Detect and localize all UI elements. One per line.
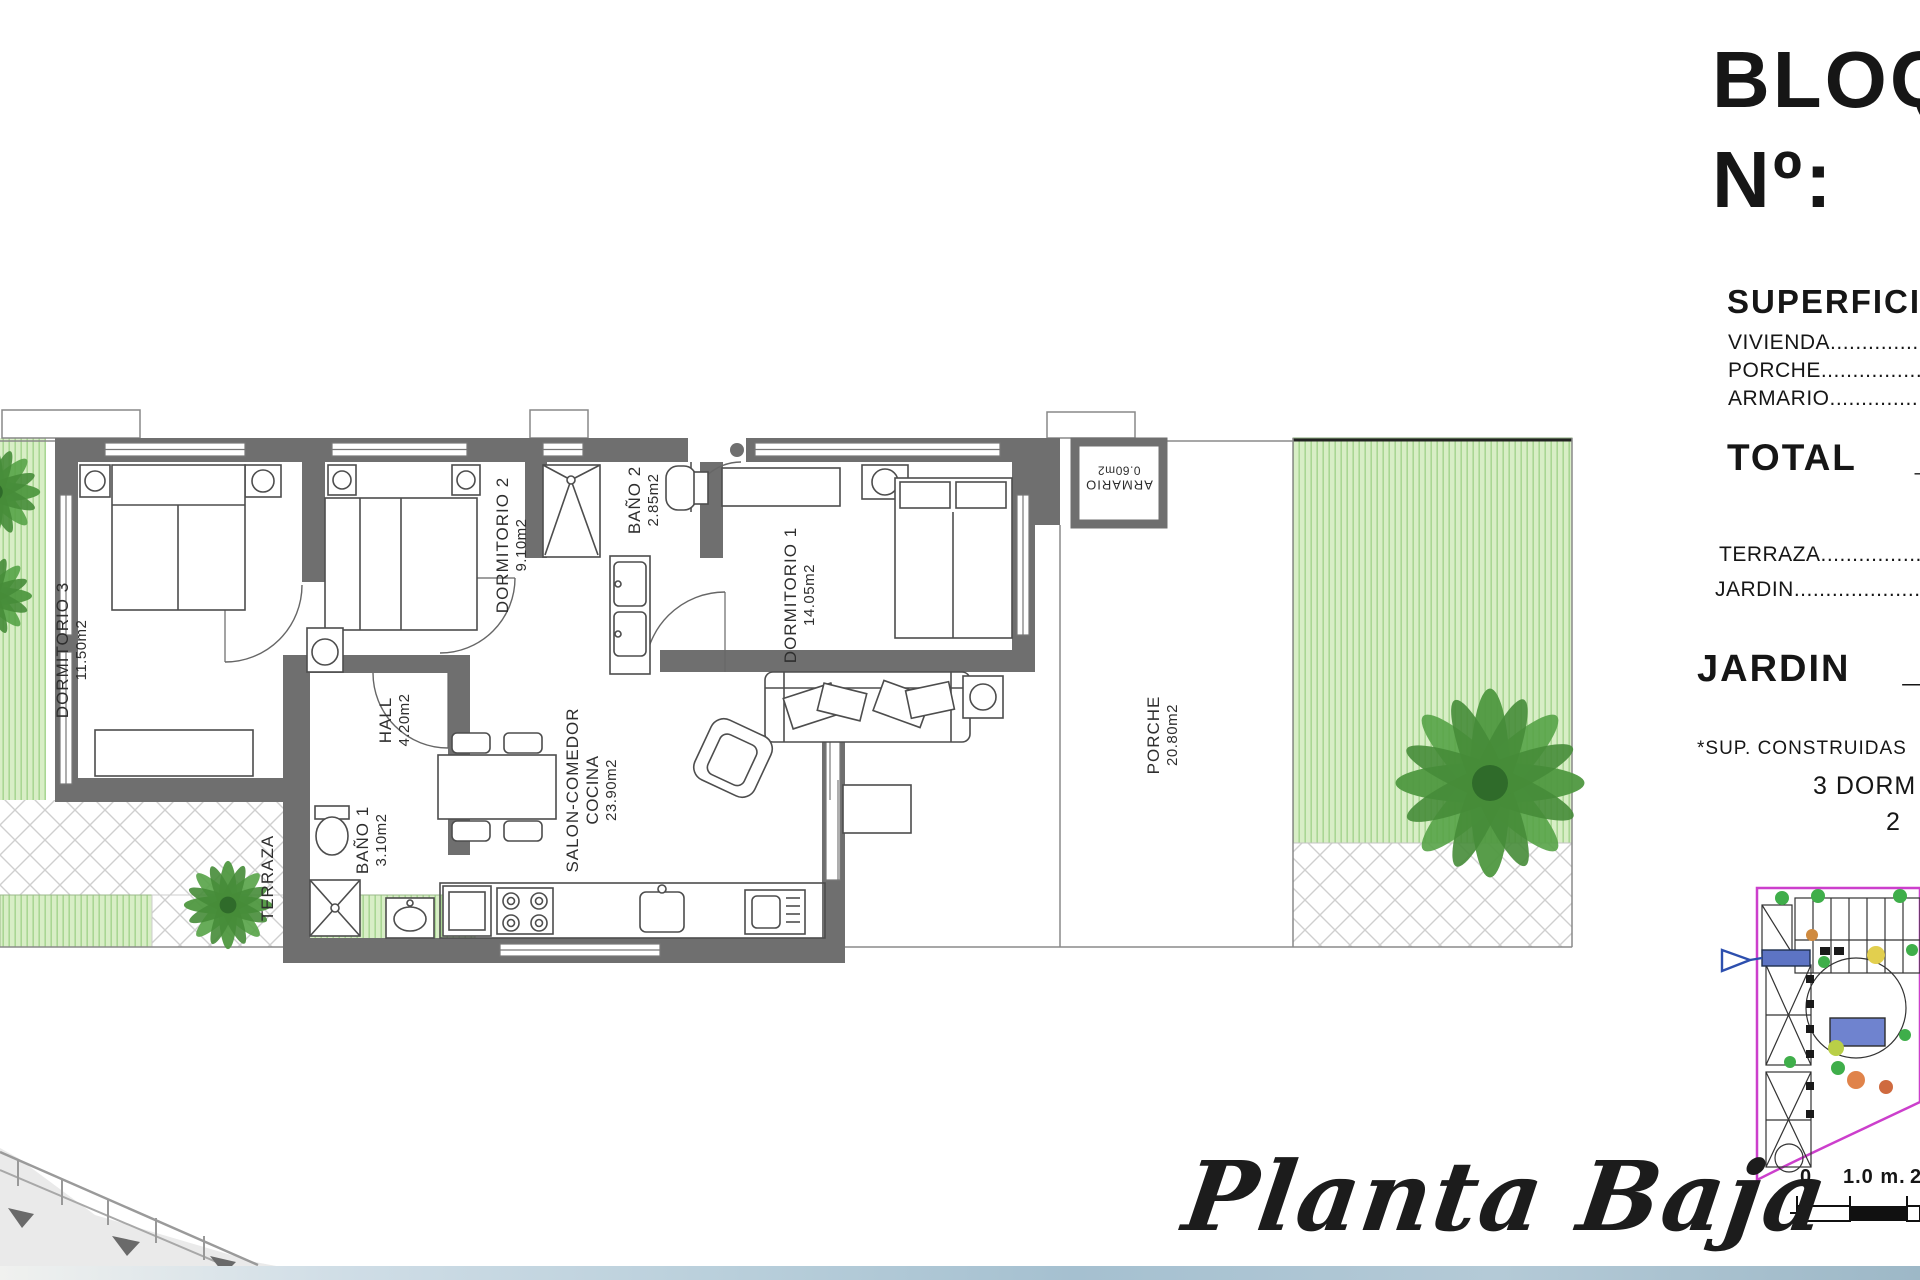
room-area: 14.05m2 <box>801 527 819 663</box>
surface-line-vivienda: VIVIENDA................................… <box>1728 331 1920 355</box>
block-title: BLOQ <box>1712 34 1920 126</box>
room-area: 23.90m2 <box>603 707 621 872</box>
surface-line-armario: ARMARIO.................................… <box>1728 387 1920 411</box>
room-name: HALL <box>376 697 395 744</box>
room-label-bano2: BAÑO 2 2.85m2 <box>625 466 663 534</box>
room-area: 0.60m2 <box>1085 463 1153 477</box>
room-label-porche: PORCHE 20.80m2 <box>1144 696 1182 775</box>
jardin-total-line: JARDIN_2 <box>1697 648 1920 691</box>
floor-plan-drawing <box>0 0 1920 1280</box>
room-label-dormitorio3: DORMITORIO 3 11.50m2 <box>53 582 91 718</box>
note-value: 2 <box>1886 808 1901 837</box>
room-label-dormitorio1: DORMITORIO 1 14.05m2 <box>781 527 819 663</box>
room-name: DORMITORIO 2 <box>493 477 512 613</box>
note-3-dorm: 3 DORM <box>1813 772 1916 801</box>
scale-two-meter-label: 2 <box>1910 1166 1920 1189</box>
scale-one-meter-label: 1.0 m. <box>1843 1166 1906 1189</box>
room-label-armario: ARMARIO 0.60m2 <box>1085 463 1153 492</box>
building-photo-fragment <box>0 1148 350 1280</box>
room-area: 4.20m2 <box>396 693 414 746</box>
room-area: 11.50m2 <box>73 582 91 718</box>
total-separator: _ <box>1915 437 1920 478</box>
surface-line-terraza: TERRAZA.................................… <box>1719 543 1920 567</box>
surfaces-title: SUPERFICIE <box>1727 283 1920 321</box>
jardin-total-separator: _ <box>1902 648 1920 690</box>
room-label-salon: SALON-COMEDOR COCINA 23.90m2 <box>563 707 621 872</box>
surface-line-porche: PORCHE..................................… <box>1728 359 1920 383</box>
entry-steps <box>2 410 1135 438</box>
room-name: ARMARIO <box>1085 478 1153 493</box>
room-area: 3.10m2 <box>373 806 391 874</box>
room-name: TERRAZA <box>258 835 277 921</box>
site-plan <box>1722 888 1920 1180</box>
floorplan-page: DORMITORIO 3 11.50m2 DORMITORIO 2 9.10m2… <box>0 0 1920 1280</box>
room-area: 9.10m2 <box>513 477 531 613</box>
plan-title: Planta Baja <box>1177 1140 1836 1253</box>
room-name: PORCHE <box>1144 696 1163 775</box>
room-name: DORMITORIO 3 <box>53 582 72 718</box>
jardin-total-label: JARDIN <box>1697 648 1850 690</box>
room-name: DORMITORIO 1 <box>781 527 800 663</box>
total-label: TOTAL <box>1727 437 1857 478</box>
room-label-hall: HALL 4.20m2 <box>376 693 414 746</box>
room-label-bano1: BAÑO 1 3.10m2 <box>353 806 391 874</box>
room-name: BAÑO 1 <box>353 806 372 874</box>
room-label-dormitorio2: DORMITORIO 2 9.10m2 <box>493 477 531 613</box>
room-area: 2.85m2 <box>645 466 663 534</box>
room-name: BAÑO 2 <box>625 466 644 534</box>
total-line: TOTAL_1 <box>1727 437 1920 479</box>
room-area: 20.80m2 <box>1164 696 1182 775</box>
surface-line-jardin: JARDIN..................................… <box>1715 578 1920 602</box>
room-name-2: COCINA <box>583 707 603 872</box>
room-name: SALON-COMEDOR <box>563 707 582 872</box>
bottom-photo-band <box>0 1266 1920 1280</box>
footnote-sup-construidas: *SUP. CONSTRUIDAS <box>1697 738 1907 760</box>
room-label-terraza: TERRAZA <box>258 835 278 921</box>
unit-number-label: Nº: <box>1712 134 1835 226</box>
